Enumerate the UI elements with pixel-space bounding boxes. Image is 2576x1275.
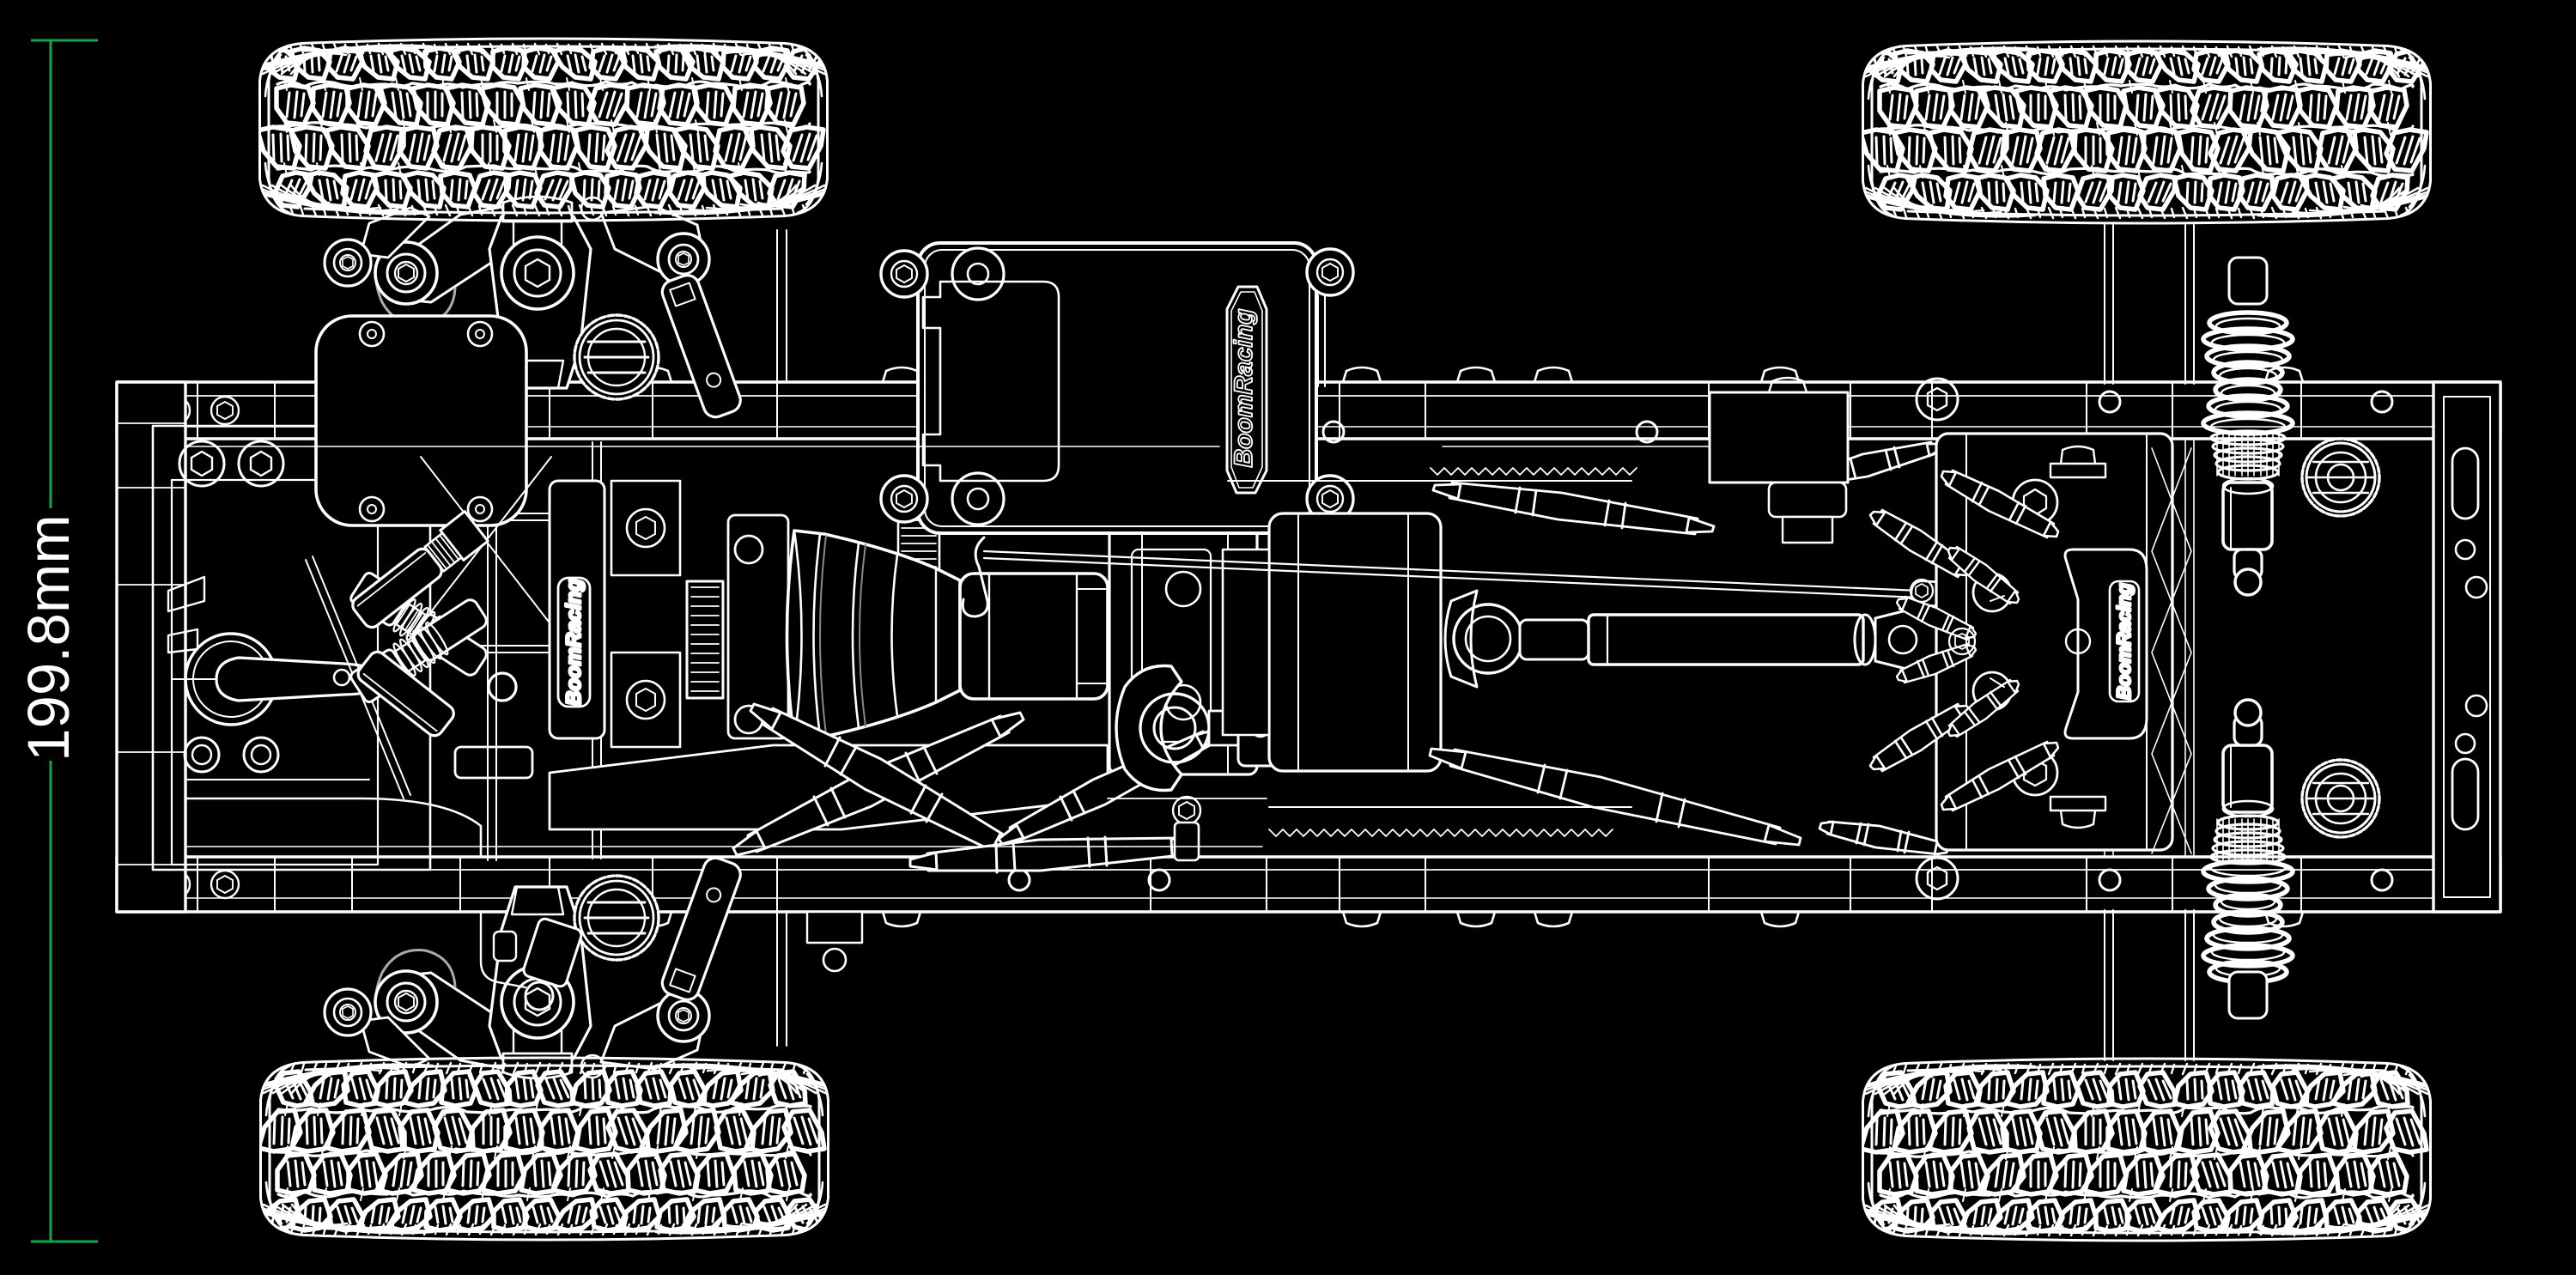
svg-text:BoomRacing: BoomRacing bbox=[2113, 583, 2135, 700]
svg-text:199.8mm: 199.8mm bbox=[15, 514, 82, 762]
svg-text:BoomRacing: BoomRacing bbox=[562, 579, 586, 706]
svg-text:BoomRacing: BoomRacing bbox=[1230, 308, 1258, 467]
